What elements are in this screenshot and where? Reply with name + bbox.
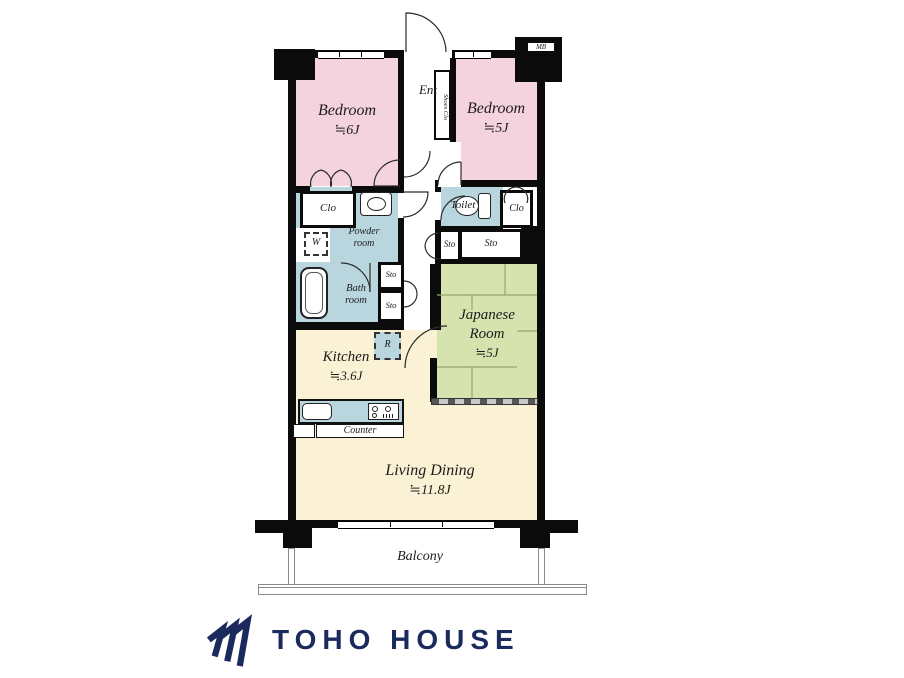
powder-room-label: Powder room bbox=[330, 226, 398, 250]
room-size: ≒6J bbox=[335, 123, 360, 138]
japanese-room-label: Japanese Room ≒5J bbox=[437, 306, 537, 363]
room-name: Living Dining bbox=[385, 462, 474, 479]
room-name: Japanese bbox=[459, 307, 515, 323]
balcony-label: Balcony bbox=[370, 549, 470, 566]
toilet-label: Toilet bbox=[441, 199, 485, 212]
company-name: TOHO HOUSE bbox=[272, 624, 520, 656]
bedroom-1-label: Bedroom ≒6J bbox=[297, 102, 397, 140]
floor-plan-canvas: MB Clo W Clo Sto Sto Sto Sto bbox=[0, 0, 904, 678]
room-name: room bbox=[354, 238, 375, 249]
entrance-label: Ent bbox=[404, 82, 452, 97]
room-name: Powder bbox=[348, 226, 379, 237]
toho-house-logo-icon bbox=[203, 610, 265, 668]
room-name: Bedroom bbox=[318, 102, 376, 119]
room-size: ≒5J bbox=[484, 121, 509, 136]
room-name: Kitchen bbox=[323, 349, 370, 365]
room-name: Bedroom bbox=[467, 100, 525, 117]
room-size: ≒3.6J bbox=[330, 368, 363, 383]
living-dining-label: Living Dining ≒11.8J bbox=[360, 462, 500, 500]
kitchen-label: Kitchen ≒3.6J bbox=[300, 348, 392, 386]
room-name: Bath bbox=[346, 283, 366, 294]
room-name: room bbox=[345, 295, 367, 306]
room-size: ≒5J bbox=[475, 345, 498, 360]
bedroom-2-label: Bedroom ≒5J bbox=[446, 100, 546, 138]
bath-room-label: Bath room bbox=[332, 283, 380, 308]
room-size: ≒11.8J bbox=[409, 483, 450, 498]
room-name: Room bbox=[470, 326, 505, 342]
